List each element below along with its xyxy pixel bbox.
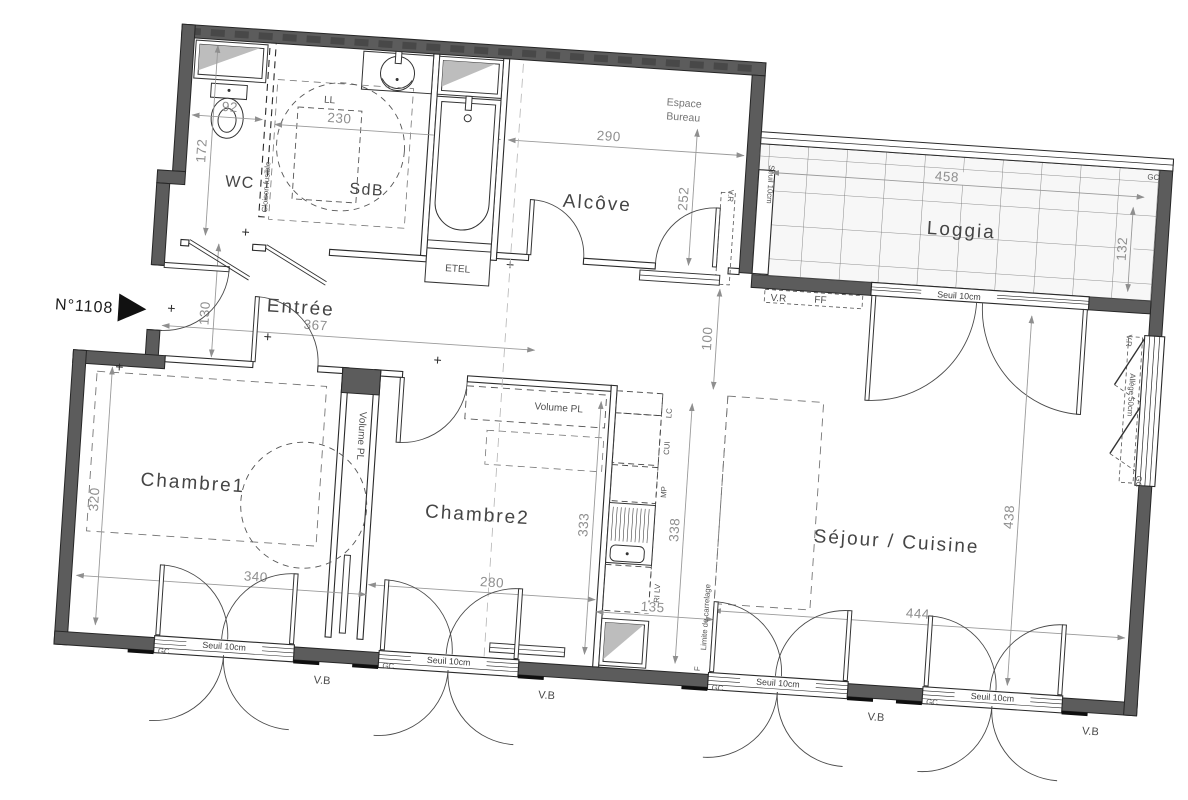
room-label-sdb: SdB	[349, 181, 385, 200]
dim-wc-depth: 172	[193, 138, 210, 163]
cui-label: CUI	[662, 441, 672, 455]
closet-header	[341, 368, 381, 395]
window4-vb-label: V.B	[1082, 725, 1099, 738]
dim-sejour-width: 444	[905, 605, 930, 622]
unit-number-label: N°1108	[55, 296, 114, 317]
level-mark: +	[167, 300, 176, 317]
loggia-area: Seuil 10cm 458 132 Loggia GC	[752, 132, 1174, 302]
dim-chambre1-width: 340	[243, 568, 268, 585]
entrance-arrow-icon	[117, 294, 147, 324]
dim-chambre2-depth: 333	[575, 512, 592, 537]
turning-circle-ch1	[237, 438, 371, 572]
lc-label: LC	[664, 408, 674, 419]
window1-vb-label: V.B	[313, 674, 330, 687]
floor-plan-page: Seuil 10cm 458 132 Loggia GC Seuil 10cm …	[0, 0, 1188, 800]
bedroom2-door-leaf	[396, 377, 404, 442]
espace-bureau-label-2: Bureau	[666, 110, 701, 124]
bed2-outline	[485, 430, 604, 472]
lc-unit	[616, 391, 663, 416]
room-label-sejour: Séjour / Cuisine	[813, 526, 980, 558]
dim-wall-gap: 100	[699, 326, 716, 351]
bay-door-leaf-right	[1076, 309, 1087, 414]
window4-gc-label: GC	[926, 697, 939, 707]
sejour-ff-label: FF	[814, 295, 827, 307]
sejour-vr-label: V.R	[770, 293, 786, 305]
room-label-alcove: Alcôve	[562, 191, 632, 217]
dim-kitchen-length: 338	[666, 517, 683, 542]
volume-pl-label-2: Volume PL	[534, 401, 583, 415]
closet-door-panel	[339, 555, 350, 633]
bed1-outline	[87, 371, 327, 546]
turning-circle-sdb	[272, 79, 408, 215]
floor-plan: Seuil 10cm 458 132 Loggia GC Seuil 10cm …	[0, 0, 1188, 800]
dim-loggia-depth: 132	[1114, 236, 1131, 261]
fridge-label: F	[693, 666, 702, 672]
wc-door-leaf	[187, 240, 252, 281]
window3-gc-label: GC	[711, 683, 724, 693]
bedroom1-door-leaf	[251, 297, 259, 362]
etel-label: ETEL	[445, 263, 471, 276]
ll-label: LL	[324, 95, 336, 107]
east-window-allege-label: Allège 50cm	[1125, 373, 1137, 416]
room-label-chambre2: Chambre2	[424, 501, 530, 529]
alcove-vr-label: V.R	[726, 189, 736, 202]
level-mark: +	[241, 224, 250, 241]
dim-wc-width: 92	[221, 99, 238, 115]
sdb-door-leaf	[263, 245, 328, 286]
window2-vb-label: V.B	[538, 689, 555, 702]
alcove-area: Alcôve Espace Bureau 252 290 V.R	[500, 86, 748, 286]
window2-gc-label: GC	[382, 661, 395, 671]
dim-alcove-width: 290	[596, 128, 621, 145]
dim-entree-width: 130	[196, 301, 213, 326]
east-window-gc-label: GC	[1134, 475, 1144, 488]
volume-pl-label-1: Volume PL	[354, 411, 368, 460]
dim-loggia-width: 458	[934, 168, 959, 185]
dim-alcove-depth: 252	[675, 186, 692, 211]
limite-carrelage-label: Limite de carrelage	[699, 584, 712, 651]
sejour-east-window: V.R Allège 50cm GC	[1108, 334, 1165, 489]
room-label-wc: WC	[225, 173, 256, 192]
window1-gc-label: GC	[158, 646, 171, 656]
level-mark: +	[433, 352, 442, 369]
bay-door-leaf-left	[865, 295, 876, 400]
east-window-vr-label: V.R	[1124, 334, 1134, 347]
mp-unit	[610, 465, 658, 504]
dim-kitchen-width: 135	[640, 599, 665, 616]
level-mark: +	[263, 328, 272, 345]
dim-sdb-width: 230	[327, 110, 352, 127]
bedroom2-area: Chambre2 Volume PL 333 280	[365, 376, 609, 658]
dim-chambre2-width: 280	[480, 574, 505, 591]
dim-chambre1-depth: 320	[86, 487, 103, 512]
room-label-chambre1: Chambre1	[140, 469, 246, 497]
loggia-gc-label: GC	[1147, 172, 1160, 182]
espace-bureau-label-1: Espace	[666, 96, 702, 110]
entrance-door-leaf	[164, 262, 229, 271]
dim-sejour-depth: 438	[1001, 504, 1018, 529]
sejour-door-leaf	[712, 208, 720, 267]
plan-rotated-group: Seuil 10cm 458 132 Loggia GC Seuil 10cm …	[28, 17, 1181, 786]
mp-label: MP	[659, 486, 669, 498]
cui-unit	[612, 413, 661, 466]
alcove-door-leaf	[527, 200, 535, 255]
kitchen-zone-outline	[714, 396, 824, 610]
window3-vb-label: V.B	[867, 711, 884, 724]
